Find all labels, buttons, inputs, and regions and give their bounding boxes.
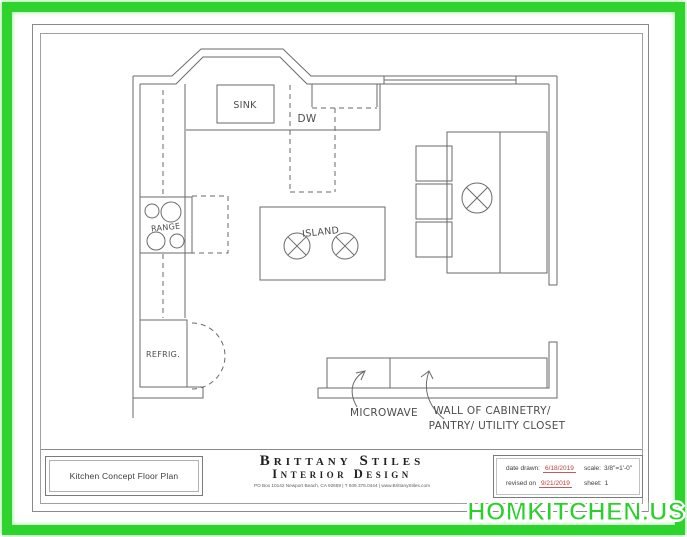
info-box: date drawn: 6/18/2019 scale: 3/8"=1'-0" …	[493, 455, 643, 498]
info-row-1: date drawn: 6/18/2019 scale: 3/8"=1'-0"	[506, 465, 634, 473]
ceiling-light-symbol	[462, 183, 492, 213]
sink: SINK	[217, 85, 274, 123]
dw-label: DW	[297, 113, 316, 125]
drawing-title: Kitchen Concept Floor Plan	[70, 471, 179, 481]
refrigerator: REFRIG.	[140, 320, 225, 389]
refrig-label: REFRIG.	[146, 350, 180, 359]
sheet-label: sheet:	[584, 480, 602, 487]
banquette-table	[447, 132, 547, 273]
sink-label: SINK	[233, 100, 257, 111]
sheet-value: 1	[605, 480, 609, 487]
firm-name: Brittany Stiles	[240, 454, 444, 468]
island: ISLAND	[260, 207, 385, 280]
firm-block: Brittany Stiles Interior Design PO Box 1…	[240, 454, 444, 488]
cabinetry-wall	[327, 358, 547, 388]
scale: scale: 3/8"=1'-0"	[584, 465, 634, 472]
drawing-title-box: Kitchen Concept Floor Plan	[45, 456, 203, 496]
counters	[185, 84, 380, 318]
island-label: ISLAND	[302, 225, 340, 240]
firm-contact: PO Box 10142 Newport Beach, CA 92659 | T…	[240, 483, 444, 488]
microwave-label: MICROWAVE	[350, 407, 418, 419]
window-symbol	[384, 76, 516, 84]
revised-value: 9/21/2019	[539, 480, 572, 488]
pendant-light-symbol	[332, 233, 358, 259]
cabinetry-label-line1: WALL OF CABINETRY/	[433, 405, 551, 417]
upper-cabinets-dashed	[163, 90, 377, 318]
firm-subtitle: Interior Design	[240, 468, 444, 480]
range: RANGE	[140, 197, 192, 253]
scale-label: scale:	[584, 465, 601, 472]
date-drawn: date drawn: 6/18/2019	[506, 465, 584, 473]
cabinetry-label-line2: PANTRY/ UTILITY CLOSET	[429, 420, 566, 432]
watermark: HOMKITCHEN.US	[467, 498, 685, 527]
annotations: MICROWAVE WALL OF CABINETRY/ PANTRY/ UTI…	[350, 371, 566, 432]
date-drawn-value: 6/18/2019	[543, 465, 576, 473]
revised-label: revised on	[506, 480, 536, 487]
range-label: RANGE	[151, 221, 181, 233]
info-box-inner: date drawn: 6/18/2019 scale: 3/8"=1'-0" …	[496, 458, 640, 495]
drawing-title-box-inner: Kitchen Concept Floor Plan	[49, 460, 199, 492]
info-row-2: revised on 9/21/2019 sheet: 1	[506, 480, 634, 488]
date-drawn-label: date drawn:	[506, 465, 540, 472]
sheet: sheet: 1	[584, 480, 634, 487]
revised: revised on 9/21/2019	[506, 480, 584, 488]
scale-value: 3/8"=1'-0"	[604, 465, 632, 472]
